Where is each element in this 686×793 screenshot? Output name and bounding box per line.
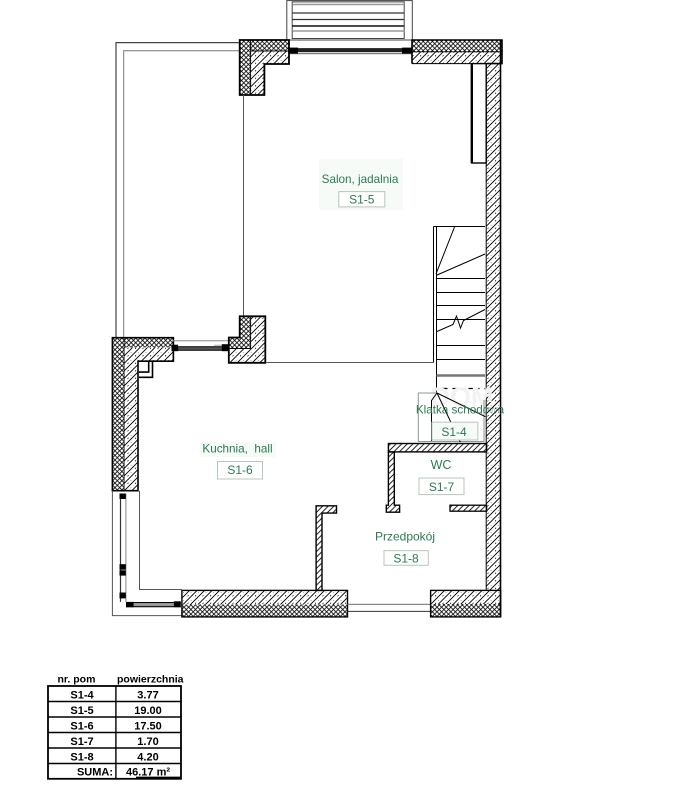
svg-text:powierzchnia: powierzchnia <box>117 674 184 686</box>
svg-text:4.20: 4.20 <box>137 752 158 764</box>
svg-text:S1-8: S1-8 <box>70 752 93 764</box>
svg-text:WC: WC <box>431 458 452 472</box>
svg-text:Salon, jadalnia: Salon, jadalnia <box>322 173 399 186</box>
svg-text:S1-6: S1-6 <box>227 463 253 477</box>
svg-text:S1-5: S1-5 <box>70 705 93 717</box>
svg-text:19.00: 19.00 <box>134 705 162 717</box>
svg-text:S1-6: S1-6 <box>70 721 93 733</box>
svg-text:Przedpokój: Przedpokój <box>375 530 435 544</box>
svg-text:1.70: 1.70 <box>137 736 158 748</box>
svg-text:3.77: 3.77 <box>137 690 158 702</box>
svg-text:S1-5: S1-5 <box>349 193 375 207</box>
svg-text:S1-4: S1-4 <box>70 690 94 702</box>
svg-text:17.50: 17.50 <box>134 721 162 733</box>
svg-text:SUMA:: SUMA: <box>77 767 113 779</box>
svg-text:S1-4: S1-4 <box>441 425 467 439</box>
svg-text:S1-8: S1-8 <box>393 551 419 565</box>
svg-text:Kuchnia, hall: Kuchnia, hall <box>202 443 272 456</box>
svg-text:S1-7: S1-7 <box>429 480 455 494</box>
svg-text:nr. pom: nr. pom <box>58 674 96 686</box>
svg-text:S1-7: S1-7 <box>70 736 93 748</box>
